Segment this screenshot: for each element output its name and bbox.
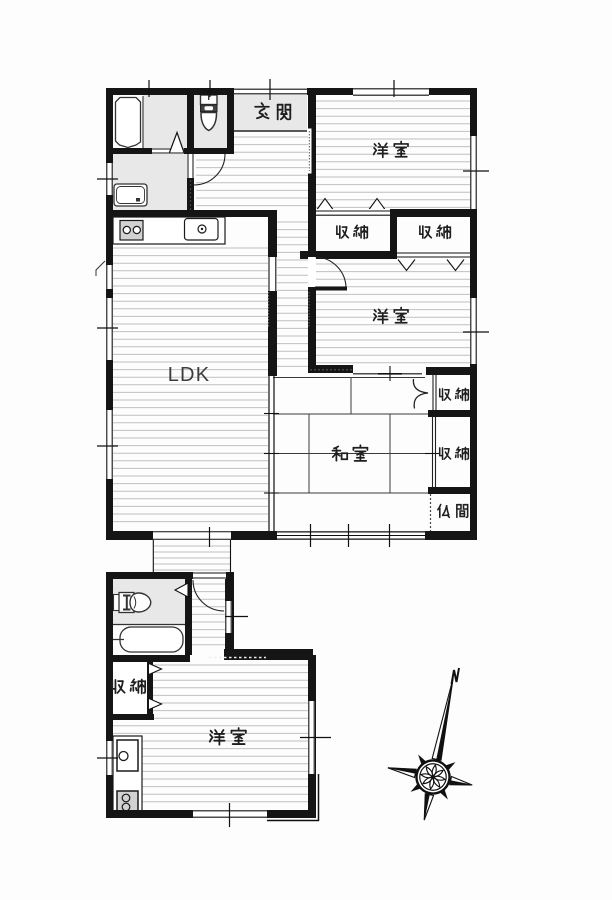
- svg-text:LDK: LDK: [168, 364, 211, 386]
